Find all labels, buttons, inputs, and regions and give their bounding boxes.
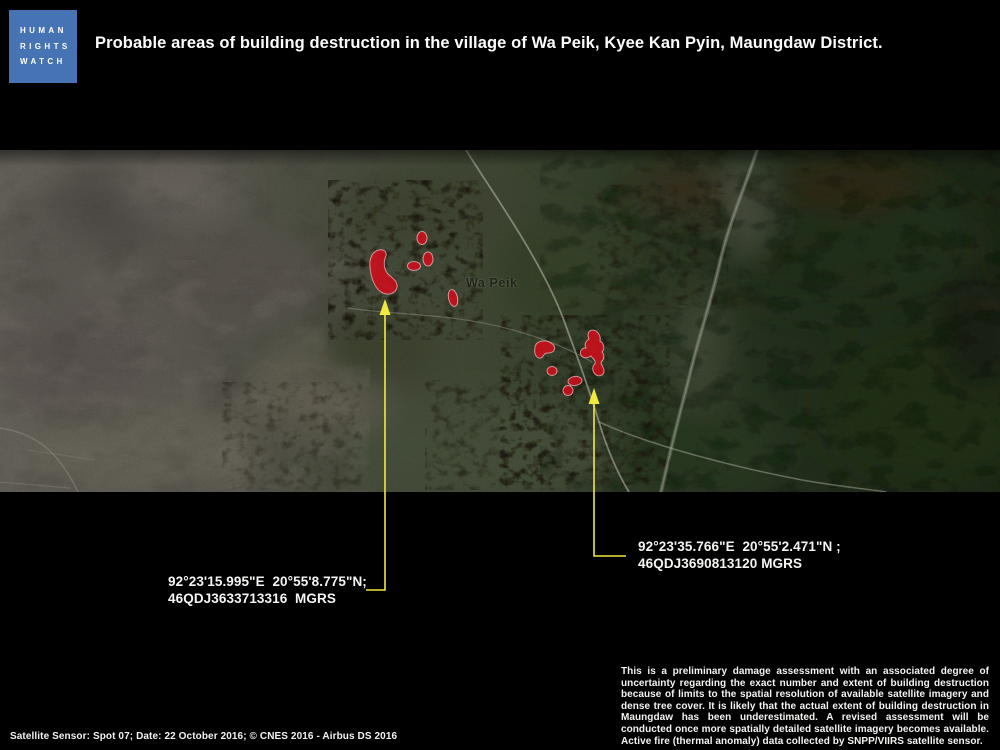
top-shade bbox=[0, 150, 1000, 166]
east-coordinates: 92°23'35.766"E 20°55'2.471"N ; bbox=[638, 539, 841, 556]
logo-line-human: HUMAN bbox=[20, 23, 77, 39]
hrw-logo: HUMAN RIGHTS WATCH bbox=[9, 10, 77, 83]
credits-text: Satellite Sensor: Spot 07; Date: 22 Octo… bbox=[10, 731, 397, 742]
logo-line-watch: WATCH bbox=[20, 54, 77, 70]
grain-light bbox=[0, 150, 1000, 492]
east-callout-text: 92°23'35.766"E 20°55'2.471"N ; 46QDJ3690… bbox=[638, 539, 841, 572]
west-mgrs: 46QDJ3633713316 MGRS bbox=[168, 591, 367, 608]
satellite-map: Wa Peik bbox=[0, 150, 1000, 492]
disclaimer-text: This is a preliminary damage assessment … bbox=[621, 666, 989, 747]
east-mgrs: 46QDJ3690813120 MGRS bbox=[638, 556, 841, 573]
page-title: Probable areas of building destruction i… bbox=[95, 34, 975, 53]
logo-line-rights: RIGHTS bbox=[20, 39, 77, 55]
west-callout-text: 92°23'15.995"E 20°55'8.775"N; 46QDJ36337… bbox=[168, 574, 367, 607]
west-coordinates: 92°23'15.995"E 20°55'8.775"N; bbox=[168, 574, 367, 591]
infographic-page: HUMAN RIGHTS WATCH Probable areas of bui… bbox=[0, 0, 1000, 750]
map-svg bbox=[0, 150, 1000, 492]
place-label-wa-peik: Wa Peik bbox=[466, 276, 518, 290]
